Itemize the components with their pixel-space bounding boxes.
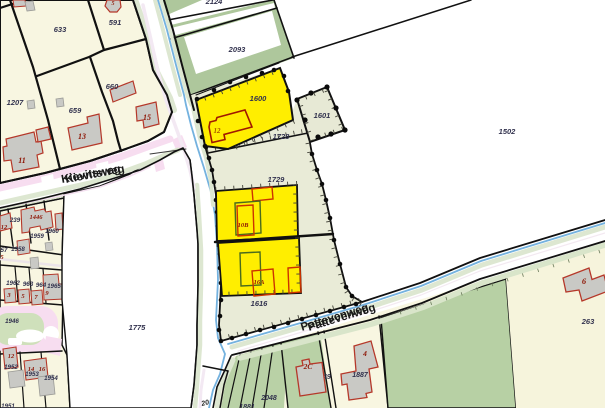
svg-text:1502: 1502	[499, 127, 517, 136]
svg-text:963: 963	[23, 281, 34, 288]
svg-text:4: 4	[362, 349, 367, 358]
svg-text:1959: 1959	[30, 233, 44, 240]
svg-text:13: 13	[78, 132, 86, 141]
svg-text:633: 633	[54, 25, 67, 34]
svg-text:16A: 16A	[254, 279, 266, 286]
svg-text:1954: 1954	[44, 375, 58, 382]
svg-text:1728: 1728	[273, 132, 291, 141]
svg-text:239: 239	[9, 217, 21, 224]
svg-text:1958: 1958	[11, 246, 25, 253]
svg-text:2124: 2124	[205, 0, 224, 6]
svg-text:1946: 1946	[5, 318, 19, 325]
svg-text:1960: 1960	[45, 228, 59, 235]
svg-text:16: 16	[39, 366, 46, 373]
svg-text:12: 12	[214, 127, 222, 135]
svg-text:964: 964	[36, 282, 47, 289]
svg-text:15: 15	[143, 113, 151, 122]
svg-text:12: 12	[8, 353, 15, 360]
svg-text:1446: 1446	[30, 214, 44, 221]
svg-text:1729: 1729	[268, 175, 286, 184]
svg-text:2093: 2093	[228, 45, 247, 54]
svg-text:5: 5	[112, 1, 115, 7]
svg-text:263: 263	[581, 317, 595, 326]
svg-text:1207: 1207	[7, 98, 25, 107]
svg-text:1951: 1951	[1, 403, 15, 408]
svg-text:12: 12	[1, 224, 8, 231]
svg-text:1952: 1952	[4, 364, 18, 371]
svg-text:1881: 1881	[239, 404, 255, 408]
svg-text:10B: 10B	[238, 222, 250, 229]
svg-text:57: 57	[1, 247, 8, 254]
svg-text:1775: 1775	[129, 323, 147, 332]
svg-text:1600: 1600	[250, 94, 268, 103]
svg-text:1616: 1616	[251, 299, 269, 308]
svg-text:2C: 2C	[303, 362, 314, 371]
svg-text:660: 660	[106, 82, 119, 91]
svg-text:1887: 1887	[352, 372, 369, 379]
svg-text:2048: 2048	[260, 395, 277, 402]
svg-text:591: 591	[109, 18, 122, 27]
svg-text:1965: 1965	[47, 283, 61, 290]
svg-text:1601: 1601	[314, 111, 331, 120]
svg-text:11: 11	[18, 156, 26, 165]
svg-text:1962: 1962	[6, 280, 20, 287]
svg-text:659: 659	[69, 106, 82, 115]
svg-text:1953: 1953	[25, 371, 39, 378]
